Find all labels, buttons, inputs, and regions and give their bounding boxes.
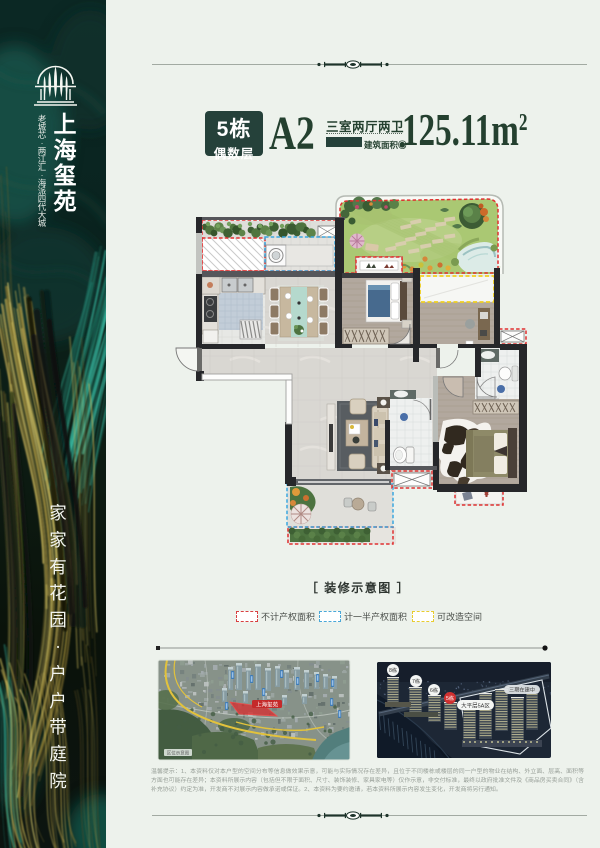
- svg-text:三期在建中: 三期在建中: [509, 686, 535, 694]
- svg-text:5栋: 5栋: [446, 694, 454, 702]
- svg-text:7栋: 7栋: [412, 677, 420, 685]
- svg-text:大平层5A区: 大平层5A区: [461, 702, 490, 710]
- svg-text:6栋: 6栋: [430, 686, 438, 694]
- svg-text:区位示意图: 区位示意图: [167, 750, 190, 757]
- svg-text:上海玺苑: 上海玺苑: [256, 701, 279, 709]
- svg-text:8栋: 8栋: [389, 666, 397, 674]
